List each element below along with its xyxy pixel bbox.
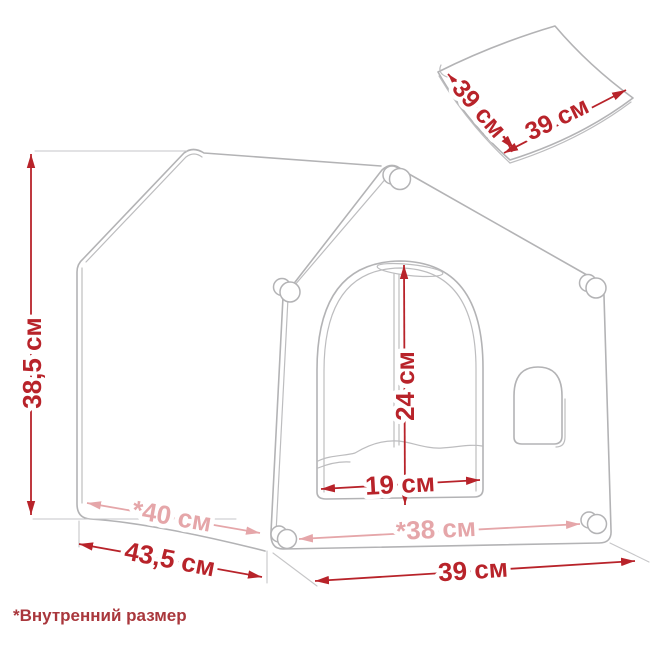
window-outline — [514, 367, 562, 444]
cushion-edge-fold — [318, 462, 350, 468]
witness-lines — [33, 151, 649, 586]
width-witness-left — [273, 553, 317, 586]
door-top-cut-edge — [377, 261, 444, 279]
left-wall-outline — [77, 150, 381, 552]
dim-inner-depth-label: *40 см — [130, 494, 214, 537]
house-drawing — [77, 150, 611, 552]
left-peg-icon — [280, 282, 300, 302]
front-left-edge-double — [276, 298, 288, 533]
apex-peg-icon — [390, 169, 411, 190]
dim-height-label: 38,5 см — [17, 317, 47, 409]
front-left-slope-double — [288, 176, 388, 293]
mat-corner-tick — [504, 136, 512, 152]
dim-door-height-label: 24 см — [390, 351, 420, 421]
right-peg-icon — [586, 278, 606, 298]
dim-outer-depth-label: 43,5 см — [122, 536, 218, 583]
dim-door-width-label: 19 см — [364, 467, 435, 501]
inner-size-footnote: *Внутренний размер — [13, 606, 187, 625]
bottom-right-peg-icon — [588, 515, 607, 534]
cushion-edge — [318, 441, 482, 461]
left-roof-edge-double — [86, 154, 202, 262]
pet-house-dimension-diagram: 38,5 см 43,5 см *40 см 24 см 19 см *38 с… — [0, 0, 650, 650]
dim-outer-width-label: 39 см — [437, 553, 509, 588]
dim-inner-width-label: *38 см — [395, 512, 476, 546]
dim-mat-side-label: 39 см — [446, 74, 511, 143]
front-panel-outline — [271, 166, 611, 550]
corner-pegs — [271, 166, 607, 549]
width-witness-right — [610, 543, 649, 562]
bottom-left-peg-icon — [278, 530, 297, 549]
diagram-svg: 38,5 см 43,5 см *40 см 24 см 19 см *38 с… — [0, 0, 650, 650]
dim-mat-depth-label: 39 см — [521, 92, 594, 147]
